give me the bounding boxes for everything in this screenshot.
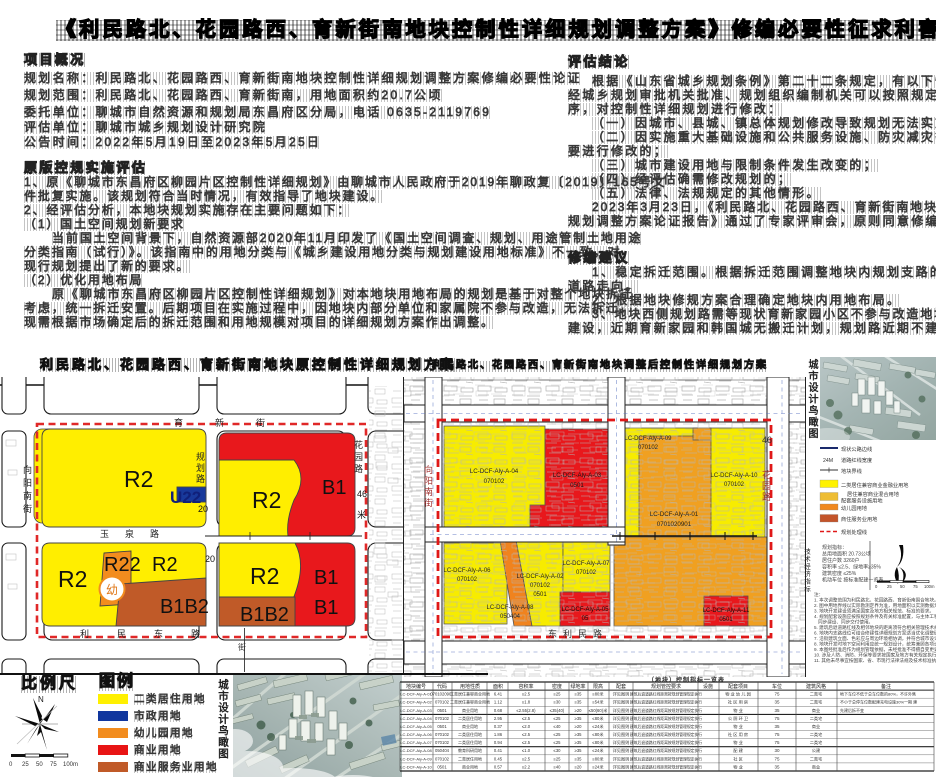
svg-text:070102: 070102: [457, 577, 478, 583]
svg-text:≤80米: ≤80米: [592, 715, 604, 722]
svg-text:LC-DCF-Aly-A-04: LC-DCF-Aly-A-04: [400, 716, 432, 721]
svg-text:限高: 限高: [593, 683, 603, 690]
svg-text:建筑后退道路红线距离按规划管理规定执行: 建筑后退道路红线距离按规划管理规定执行: [630, 708, 702, 713]
svg-text:≥35: ≥35: [575, 716, 583, 721]
svg-text:R2: R2: [152, 554, 178, 576]
svg-text:绿地率: 绿地率: [570, 683, 585, 690]
svg-text:0501: 0501: [719, 617, 733, 623]
svg-text:公 厕 环 卫: 公 厕 环 卫: [728, 716, 748, 722]
svg-text:0501: 0501: [533, 592, 547, 598]
svg-text:R22: R22: [104, 554, 141, 576]
svg-text:配 建: 配 建: [733, 747, 743, 754]
svg-text:二类居住兼容商业金融业用地: 二类居住兼容商业金融业用地: [841, 481, 908, 489]
svg-text:LC-DCF-Aly-A-09: LC-DCF-Aly-A-09: [400, 756, 432, 761]
svg-text:6.41: 6.41: [494, 692, 503, 697]
svg-text:≥20: ≥20: [575, 708, 583, 713]
svg-text:20: 20: [198, 504, 208, 514]
svg-text:东利民路: 东利民路: [548, 628, 608, 639]
svg-text:≤40: ≤40: [554, 724, 562, 729]
svg-text:≥20: ≥20: [575, 724, 583, 729]
svg-text:≤24米: ≤24米: [592, 723, 604, 730]
svg-text:≤24米: ≤24米: [592, 763, 604, 770]
svg-text:物 业: 物 业: [733, 723, 743, 730]
svg-text:设施: 设施: [703, 683, 713, 690]
svg-text:建筑后退道路红线距离按规划管理规定执行: 建筑后退道路红线距离按规划管理规定执行: [630, 700, 702, 705]
svg-text:二类宅: 二类宅: [810, 699, 823, 706]
svg-text:LC-DCF-Aly-A-05: LC-DCF-Aly-A-05: [400, 724, 432, 729]
svg-text:教育科研用地: 教育科研用地: [458, 747, 482, 753]
svg-text:N: N: [38, 695, 44, 704]
svg-text:≤50(60)米: ≤50(60)米: [589, 707, 608, 714]
svg-text:B1: B1: [314, 597, 338, 619]
svg-text:LC-DCF-Aly-A-08: LC-DCF-Aly-A-08: [400, 748, 432, 753]
svg-text:物 业 幼 儿 园: 物 业 幼 儿 园: [725, 691, 751, 698]
svg-text:≤2.5: ≤2.5: [522, 732, 531, 737]
svg-text:070102: 070102: [435, 716, 450, 721]
svg-text:幼儿园用地: 幼儿园用地: [841, 504, 867, 512]
svg-text:070102: 070102: [435, 700, 450, 705]
svg-text:0.37: 0.37: [494, 724, 503, 729]
svg-text:向阳南街: 向阳南街: [22, 464, 32, 517]
svg-text:B1: B1: [314, 567, 338, 589]
svg-text:规划指标：: 规划指标：: [822, 544, 847, 551]
svg-text:详见图则: 详见图则: [613, 691, 630, 698]
svg-text:46: 46: [762, 435, 772, 445]
svg-text:道路红线宽度: 道路红线宽度: [841, 456, 872, 464]
svg-text:建筑后退道路红线距离按规划管理规定执行: 建筑后退道路红线距离按规划管理规定执行: [630, 692, 702, 697]
svg-text:规划管控要求: 规划管控要求: [651, 683, 681, 690]
svg-text:二类居住用地: 二类居住用地: [458, 715, 482, 721]
svg-text:≤2.5: ≤2.5: [522, 756, 531, 761]
svg-text:0701020901: 0701020901: [657, 521, 692, 528]
svg-text:050404: 050404: [500, 614, 521, 620]
svg-text:居住兼容商业混合用地: 居住兼容商业混合用地: [847, 490, 899, 498]
svg-text:050404: 050404: [435, 748, 450, 753]
svg-text:U22: U22: [170, 488, 201, 507]
svg-text:50: 50: [900, 584, 905, 589]
svg-text:0.57: 0.57: [494, 764, 503, 769]
svg-text:车位: 车位: [772, 683, 782, 690]
svg-text:LC-DCF-Aly-A-05: LC-DCF-Aly-A-05: [561, 607, 609, 613]
svg-text:现状公路边线: 现状公路边线: [841, 445, 872, 453]
svg-text:24M: 24M: [823, 458, 833, 464]
svg-text:75: 75: [774, 740, 780, 745]
svg-text:育新街: 育新街: [174, 417, 297, 428]
svg-text:商业用地: 商业用地: [462, 763, 478, 769]
svg-text:75: 75: [774, 756, 780, 761]
svg-text:2.95: 2.95: [494, 716, 503, 721]
svg-text:0501: 0501: [437, 724, 447, 729]
svg-text:≤2.0: ≤2.0: [522, 724, 531, 729]
svg-text:0.94: 0.94: [494, 740, 503, 745]
svg-text:玉泉路: 玉泉路: [100, 528, 175, 539]
svg-text:≤30: ≤30: [554, 748, 562, 753]
svg-text:社 区 用 房: 社 区 用 房: [728, 699, 748, 706]
svg-text:详见图则: 详见图则: [613, 699, 630, 706]
svg-text:二类居住用地: 二类居住用地: [458, 739, 482, 745]
svg-text:B1B2: B1B2: [240, 604, 289, 626]
svg-text:详见图则: 详见图则: [613, 755, 630, 762]
svg-text:居住户数 3260户: 居住户数 3260户: [822, 557, 860, 564]
svg-text:规划路: 规划路: [195, 452, 205, 485]
svg-text:二类宅: 二类宅: [810, 691, 823, 698]
svg-text:≤80米: ≤80米: [592, 739, 604, 746]
svg-text:花园路: 花园路: [761, 469, 771, 503]
svg-text:0: 0: [9, 762, 13, 768]
svg-text:≤25: ≤25: [554, 692, 562, 697]
svg-text:详见图则: 详见图则: [613, 747, 630, 754]
svg-text:米: 米: [357, 509, 366, 520]
svg-text:≥35: ≥35: [575, 692, 583, 697]
svg-text:备注: 备注: [881, 683, 891, 690]
svg-text:建筑后退道路红线距离按规划管理规定执行: 建筑后退道路红线距离按规划管理规定执行: [630, 732, 702, 737]
svg-text:0.68: 0.68: [494, 708, 503, 713]
svg-text:R2: R2: [252, 487, 281, 513]
svg-text:LC-DCF-Aly-A-10: LC-DCF-Aly-A-10: [710, 473, 758, 479]
svg-text:用地性质: 用地性质: [460, 683, 480, 690]
svg-text:070102: 070102: [576, 570, 597, 576]
svg-text:≤2.55(2.8): ≤2.55(2.8): [516, 708, 536, 713]
svg-text:100m: 100m: [924, 584, 935, 589]
svg-text:建筑风格: 建筑风格: [806, 683, 826, 690]
svg-text:11. 其他未尽事宜按国家、省、市现行法律法规及技术标准执行: 11. 其他未尽事宜按国家、省、市现行法律法规及技术标准执行。: [814, 657, 936, 664]
svg-text:LC-DCF-Aly-A-03: LC-DCF-Aly-A-03: [553, 472, 602, 479]
svg-text:商业用地: 商业用地: [462, 707, 478, 713]
svg-text:物 业: 物 业: [733, 763, 743, 770]
svg-text:二类居住兼容商业用地: 二类居住兼容商业用地: [450, 691, 490, 697]
svg-text:≤1.8: ≤1.8: [522, 700, 531, 705]
svg-text:社 区: 社 区: [733, 755, 743, 762]
svg-text:070102: 070102: [724, 482, 745, 488]
svg-text:0501: 0501: [437, 764, 447, 769]
svg-text:R2: R2: [124, 466, 153, 492]
svg-text:容积率: 容积率: [518, 683, 533, 690]
svg-text:75: 75: [774, 732, 780, 737]
svg-text:≤80米: ≤80米: [592, 755, 604, 762]
svg-text:070102: 070102: [484, 478, 505, 485]
svg-text:LC-DCF-Aly-A-06: LC-DCF-Aly-A-06: [400, 732, 432, 737]
svg-text:35: 35: [774, 724, 780, 729]
svg-text:二类宅: 二类宅: [810, 739, 823, 746]
svg-text:商业: 商业: [812, 763, 820, 770]
svg-text:≤80米: ≤80米: [592, 731, 604, 738]
svg-text:LC-DCF-Aly-A-09: LC-DCF-Aly-A-09: [624, 436, 672, 442]
svg-text:面积: 面积: [493, 683, 503, 690]
svg-text:二类居住兼容商业用地: 二类居住兼容商业用地: [450, 699, 490, 705]
svg-text:≤25: ≤25: [554, 756, 562, 761]
svg-text:LC-DCF-Aly-A-01: LC-DCF-Aly-A-01: [650, 511, 699, 518]
svg-text:物 业: 物 业: [733, 707, 743, 714]
svg-text:≤80米: ≤80米: [592, 691, 604, 698]
svg-text:二类宅: 二类宅: [810, 715, 823, 722]
svg-text:LC-DCF-Aly-A-06: LC-DCF-Aly-A-06: [443, 568, 491, 574]
svg-text:B1B2: B1B2: [160, 596, 209, 618]
svg-text:密度: 密度: [552, 683, 562, 690]
svg-text:建筑后退道路红线距离按规划管理规定执行: 建筑后退道路红线距离按规划管理规定执行: [630, 748, 702, 753]
svg-text:商业用地: 商业用地: [462, 723, 478, 729]
svg-text:≤35(40): ≤35(40): [550, 708, 565, 713]
svg-text:配套服务设施用地: 配套服务设施用地: [841, 497, 883, 505]
svg-text:≤25: ≤25: [554, 716, 562, 721]
svg-text:≥35: ≥35: [575, 756, 583, 761]
svg-text:≤2.2: ≤2.2: [522, 764, 531, 769]
svg-text:1.12: 1.12: [494, 700, 503, 705]
svg-text:20: 20: [205, 554, 215, 564]
svg-text:详见图则: 详见图则: [613, 731, 630, 738]
svg-text:75: 75: [913, 584, 918, 589]
svg-text:R2: R2: [58, 566, 87, 592]
svg-text:46: 46: [357, 489, 367, 499]
svg-text:0501: 0501: [570, 482, 584, 489]
svg-text:建筑后退道路红线距离按规划管理规定执行: 建筑后退道路红线距离按规划管理规定执行: [630, 716, 702, 721]
svg-text:0501: 0501: [437, 708, 447, 713]
svg-text:R2: R2: [250, 563, 279, 589]
svg-text:花园路: 花园路: [353, 439, 363, 476]
svg-text:地块编号: 地块编号: [406, 683, 426, 690]
svg-text:≤25: ≤25: [554, 732, 562, 737]
svg-text:35: 35: [774, 764, 780, 769]
svg-text:75: 75: [774, 692, 780, 697]
svg-text:物 业: 物 业: [733, 739, 743, 746]
svg-text:LC-DCF-Aly-A-11: LC-DCF-Aly-A-11: [703, 608, 750, 614]
svg-text:≥35: ≥35: [575, 700, 583, 705]
svg-text:070102: 070102: [435, 756, 450, 761]
svg-text:LC-DCF-Aly-A-04: LC-DCF-Aly-A-04: [470, 468, 519, 475]
svg-text:LC-DCF-Aly-A-02: LC-DCF-Aly-A-02: [516, 574, 564, 580]
svg-text:0: 0: [875, 584, 878, 589]
svg-text:二类宅: 二类宅: [810, 755, 823, 762]
svg-text:25: 25: [22, 762, 29, 768]
svg-text:向阳南街: 向阳南街: [423, 464, 433, 509]
svg-text:LC-DCF-Aly-A-03: LC-DCF-Aly-A-03: [400, 708, 432, 713]
svg-text:容积率 ≤2.5、绿地率≥35%: 容积率 ≤2.5、绿地率≥35%: [822, 564, 881, 571]
svg-text:100m: 100m: [63, 762, 78, 768]
svg-text:详见图则: 详见图则: [613, 739, 630, 746]
svg-text:幼: 幼: [106, 583, 118, 597]
svg-text:详见图则: 详见图则: [613, 715, 630, 722]
svg-text:二类居住用地: 二类居住用地: [458, 731, 482, 737]
svg-text:≤1.0: ≤1.0: [522, 748, 531, 753]
svg-text:LC-DCF-Aly-A-01: LC-DCF-Aly-A-01: [400, 692, 432, 697]
svg-text:LC-DCF-Aly-A-07: LC-DCF-Aly-A-07: [562, 561, 610, 567]
svg-text:LC-DCF-Aly-A-10: LC-DCF-Aly-A-10: [400, 764, 432, 769]
svg-text:建筑后退道路红线距离按规划管理规定执行: 建筑后退道路红线距离按规划管理规定执行: [630, 724, 702, 729]
svg-text:配套项目: 配套项目: [728, 683, 748, 690]
svg-text:B1: B1: [322, 477, 346, 499]
svg-text:35: 35: [774, 700, 780, 705]
svg-text:75: 75: [774, 716, 780, 721]
svg-text:机动车位 按标准配建一览表: 机动车位 按标准配建一览表: [822, 577, 883, 584]
svg-text:≤25: ≤25: [554, 740, 562, 745]
svg-text:≤54米: ≤54米: [592, 699, 604, 706]
svg-text:LC-DCF-Aly-A-08: LC-DCF-Aly-A-08: [486, 605, 534, 611]
svg-text:070102: 070102: [530, 583, 551, 589]
svg-text:≤30: ≤30: [554, 700, 562, 705]
svg-text:地块界线: 地块界线: [841, 467, 862, 475]
svg-text:LC-DCF-Aly-A-07: LC-DCF-Aly-A-07: [400, 740, 432, 745]
svg-text:25: 25: [887, 584, 892, 589]
svg-text:街: 街: [238, 642, 246, 652]
svg-text:公建: 公建: [812, 747, 821, 754]
svg-text:30: 30: [774, 748, 780, 753]
svg-text:≤2.5: ≤2.5: [522, 740, 531, 745]
svg-text:总用地面积 20.73公顷: 总用地面积 20.73公顷: [822, 551, 871, 558]
svg-text:技术经济指标: 技术经济指标: [804, 547, 811, 594]
svg-text:不小于总停车位数配建充电设施30%一期 建: 不小于总停车位数配建充电设施30%一期 建: [840, 699, 917, 705]
svg-text:商住服务业用地: 商住服务业用地: [841, 515, 877, 523]
svg-text:50: 50: [36, 762, 43, 768]
svg-text:地下车位不低于总车位数的80%，不许外售: 地下车位不低于总车位数的80%，不许外售: [840, 691, 916, 697]
svg-text:建筑密度 ≤25%: 建筑密度 ≤25%: [822, 570, 857, 577]
svg-text:070102: 070102: [638, 445, 659, 451]
svg-text:≥35: ≥35: [575, 748, 583, 753]
svg-text:75: 75: [50, 762, 57, 768]
svg-text:0.45: 0.45: [494, 756, 503, 761]
svg-text:商业: 商业: [812, 723, 820, 730]
svg-text:建筑后退道路红线距离按规划管理规定执行: 建筑后退道路红线距离按规划管理规定执行: [630, 740, 702, 745]
svg-text:详见图则: 详见图则: [613, 763, 630, 770]
svg-text:≥20: ≥20: [575, 764, 583, 769]
svg-text:利民东路: 利民东路: [80, 628, 228, 639]
svg-text:≤2.5: ≤2.5: [522, 716, 531, 721]
svg-text:详见图则: 详见图则: [613, 723, 630, 730]
svg-text:代码: 代码: [437, 683, 447, 690]
svg-text:建筑后退道路红线距离按规划管理规定执行: 建筑后退道路红线距离按规划管理规定执行: [630, 756, 702, 761]
svg-text:070102: 070102: [435, 740, 450, 745]
svg-text:二类宅: 二类宅: [810, 731, 823, 738]
svg-text:≤40: ≤40: [554, 764, 562, 769]
svg-text:商业: 商业: [812, 707, 820, 714]
svg-text:二类居住用地: 二类居住用地: [458, 755, 482, 761]
svg-text:0.41: 0.41: [494, 748, 503, 753]
svg-text:35: 35: [774, 708, 780, 713]
svg-text:详见图则: 详见图则: [613, 707, 630, 714]
svg-text:1.86: 1.86: [494, 732, 503, 737]
svg-text:≥35: ≥35: [575, 732, 583, 737]
svg-text:配套: 配套: [616, 683, 626, 690]
svg-text:05: 05: [582, 616, 589, 622]
svg-text:建筑后退道路红线距离按规划管理规定执行: 建筑后退道路红线距离按规划管理规定执行: [630, 764, 702, 769]
svg-text:先建后拆不变: 先建后拆不变: [840, 707, 864, 713]
svg-text:LC-DCF-Aly-A-02: LC-DCF-Aly-A-02: [400, 700, 432, 705]
svg-text:≤2.5: ≤2.5: [522, 692, 531, 697]
svg-text:社 区 用 房: 社 区 用 房: [728, 731, 748, 738]
svg-text:规划处理线: 规划处理线: [841, 528, 867, 536]
svg-text:≤24米: ≤24米: [592, 747, 604, 754]
svg-text:≥35: ≥35: [575, 740, 583, 745]
svg-text:070102: 070102: [435, 732, 450, 737]
